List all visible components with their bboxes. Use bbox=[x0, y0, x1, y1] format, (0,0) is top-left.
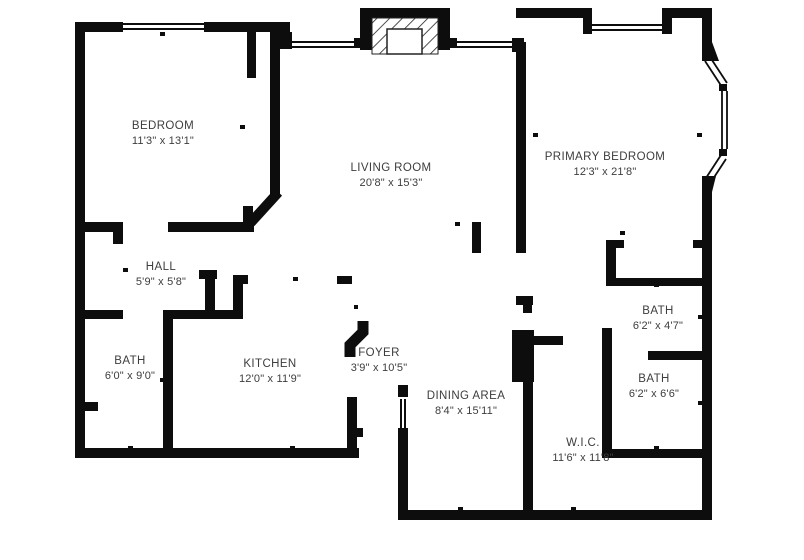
floorplan-canvas: BEDROOM 11'3" x 13'1" LIVING ROOM 20'8" … bbox=[0, 0, 804, 560]
bay-window bbox=[705, 57, 727, 182]
wall bbox=[75, 22, 85, 458]
floorplan-drawing bbox=[0, 0, 804, 560]
fireplace bbox=[354, 8, 457, 54]
walls-layer bbox=[75, 8, 719, 520]
